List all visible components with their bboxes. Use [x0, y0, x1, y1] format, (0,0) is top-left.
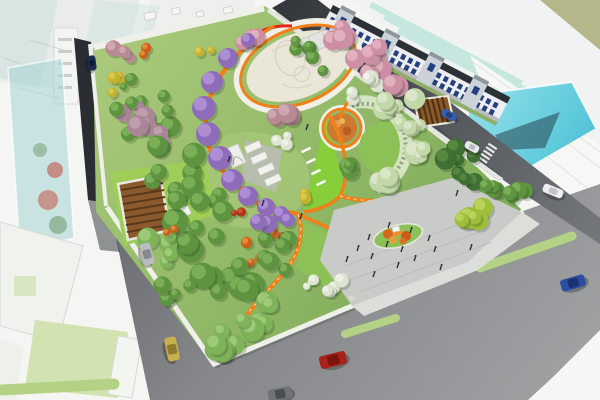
wisteria-highlight — [198, 124, 211, 137]
person-head — [389, 222, 391, 224]
tree-highlight — [237, 280, 250, 293]
tree-highlight — [195, 47, 201, 53]
person-head — [301, 213, 303, 215]
wisteria-highlight — [220, 49, 231, 60]
person-head — [387, 241, 389, 243]
tree-highlight — [318, 66, 324, 72]
wisteria-highlight — [251, 215, 260, 224]
wisteria-highlight — [203, 72, 215, 84]
tree-highlight — [237, 208, 242, 213]
tree-highlight — [309, 275, 315, 281]
tree-highlight — [380, 168, 391, 179]
tree-highlight — [152, 165, 161, 174]
tree-highlight — [334, 30, 346, 42]
tree-highlight — [208, 47, 212, 51]
tree-highlight — [126, 74, 133, 81]
tree-highlight — [395, 117, 402, 124]
tree-highlight — [171, 226, 175, 230]
tree-highlight — [164, 210, 179, 225]
person-head — [358, 245, 360, 247]
tree-highlight — [305, 42, 310, 47]
tree-highlight — [192, 193, 203, 204]
tree-highlight — [378, 93, 388, 103]
island-shrub — [400, 238, 407, 245]
median-strip — [2, 384, 114, 390]
tree-highlight — [209, 229, 218, 238]
tree-highlight — [248, 259, 252, 263]
tree-highlight — [169, 192, 179, 202]
tree-highlight — [207, 335, 219, 347]
tree-highlight — [192, 265, 206, 279]
person-head — [347, 256, 349, 258]
tree-highlight — [232, 259, 242, 269]
tree-highlight — [163, 105, 170, 112]
tree-highlight — [504, 187, 512, 195]
tree-highlight — [139, 229, 151, 241]
tree-highlight — [109, 72, 116, 79]
tree-highlight — [129, 117, 141, 129]
tree-highlight — [214, 202, 226, 214]
tree-highlight — [155, 278, 165, 288]
tree-highlight — [110, 103, 118, 111]
rock — [349, 296, 356, 300]
person-head — [372, 253, 374, 255]
tree-highlight — [474, 199, 485, 210]
tree-highlight — [480, 180, 487, 187]
person-head — [263, 200, 265, 202]
tree-highlight — [345, 161, 351, 167]
tree-highlight — [164, 248, 172, 256]
person-head — [307, 124, 309, 126]
wisteria-highlight — [242, 34, 250, 42]
tree-highlight — [404, 121, 412, 129]
wisteria-highlight — [223, 170, 235, 182]
person-head — [435, 246, 437, 248]
tree-highlight — [406, 90, 418, 102]
person-head — [369, 234, 371, 236]
wisteria-highlight — [194, 98, 207, 111]
tree-highlight — [231, 210, 234, 213]
person-head — [415, 255, 417, 257]
person-head — [457, 190, 459, 192]
tree-highlight — [190, 221, 198, 229]
tree-highlight — [272, 136, 278, 142]
tree-highlight — [107, 41, 116, 50]
tree-highlight — [184, 280, 191, 287]
tree-highlight — [119, 47, 126, 54]
person-head — [374, 271, 376, 273]
glass-tower-left — [8, 58, 74, 250]
tree-highlight — [304, 283, 308, 287]
tree-highlight — [335, 274, 343, 282]
tree-highlight — [183, 177, 195, 189]
person-head — [402, 246, 404, 248]
tree-highlight — [236, 314, 244, 322]
tree-highlight — [456, 214, 464, 222]
tree-highlight — [159, 91, 166, 98]
tree-highlight — [184, 144, 197, 157]
wisteria-highlight — [210, 148, 223, 161]
tree-highlight — [284, 132, 289, 137]
tree-highlight — [436, 150, 448, 162]
person-head — [411, 227, 413, 229]
person-head — [229, 156, 231, 158]
tree-highlight — [276, 239, 285, 248]
tree-highlight — [278, 104, 289, 115]
wisteria-highlight — [274, 207, 283, 216]
tree-highlight — [171, 289, 177, 295]
tower-inner-red — [47, 162, 63, 178]
tree-highlight — [347, 50, 358, 61]
tree-highlight — [300, 193, 307, 200]
tree-highlight — [460, 173, 467, 180]
tree-highlight — [347, 87, 353, 93]
tree-highlight — [291, 37, 297, 43]
tree-highlight — [262, 253, 272, 263]
tree-highlight — [263, 298, 272, 307]
park-aerial-rendering — [0, 0, 600, 400]
tree-highlight — [323, 286, 329, 292]
tree-highlight — [215, 325, 223, 333]
person-head — [441, 264, 443, 266]
tree-highlight — [242, 238, 248, 244]
tree-highlight — [142, 44, 148, 50]
island-shrub — [389, 236, 397, 244]
tree-highlight — [108, 88, 113, 93]
wisteria-highlight — [282, 214, 290, 222]
tree-highlight — [164, 229, 168, 233]
tree-highlight — [140, 51, 145, 56]
tree-highlight — [281, 139, 288, 146]
person-head — [398, 262, 400, 264]
tree-highlight — [363, 73, 369, 79]
tree-highlight — [417, 142, 425, 150]
person-head — [429, 235, 431, 237]
tree-highlight — [384, 76, 395, 87]
tree-highlight — [149, 137, 160, 148]
tree-highlight — [126, 97, 133, 104]
person-head — [471, 244, 473, 246]
tree-highlight — [268, 110, 277, 119]
tree-highlight — [372, 40, 381, 49]
wisteria-highlight — [240, 187, 251, 198]
tree-highlight — [120, 83, 124, 87]
